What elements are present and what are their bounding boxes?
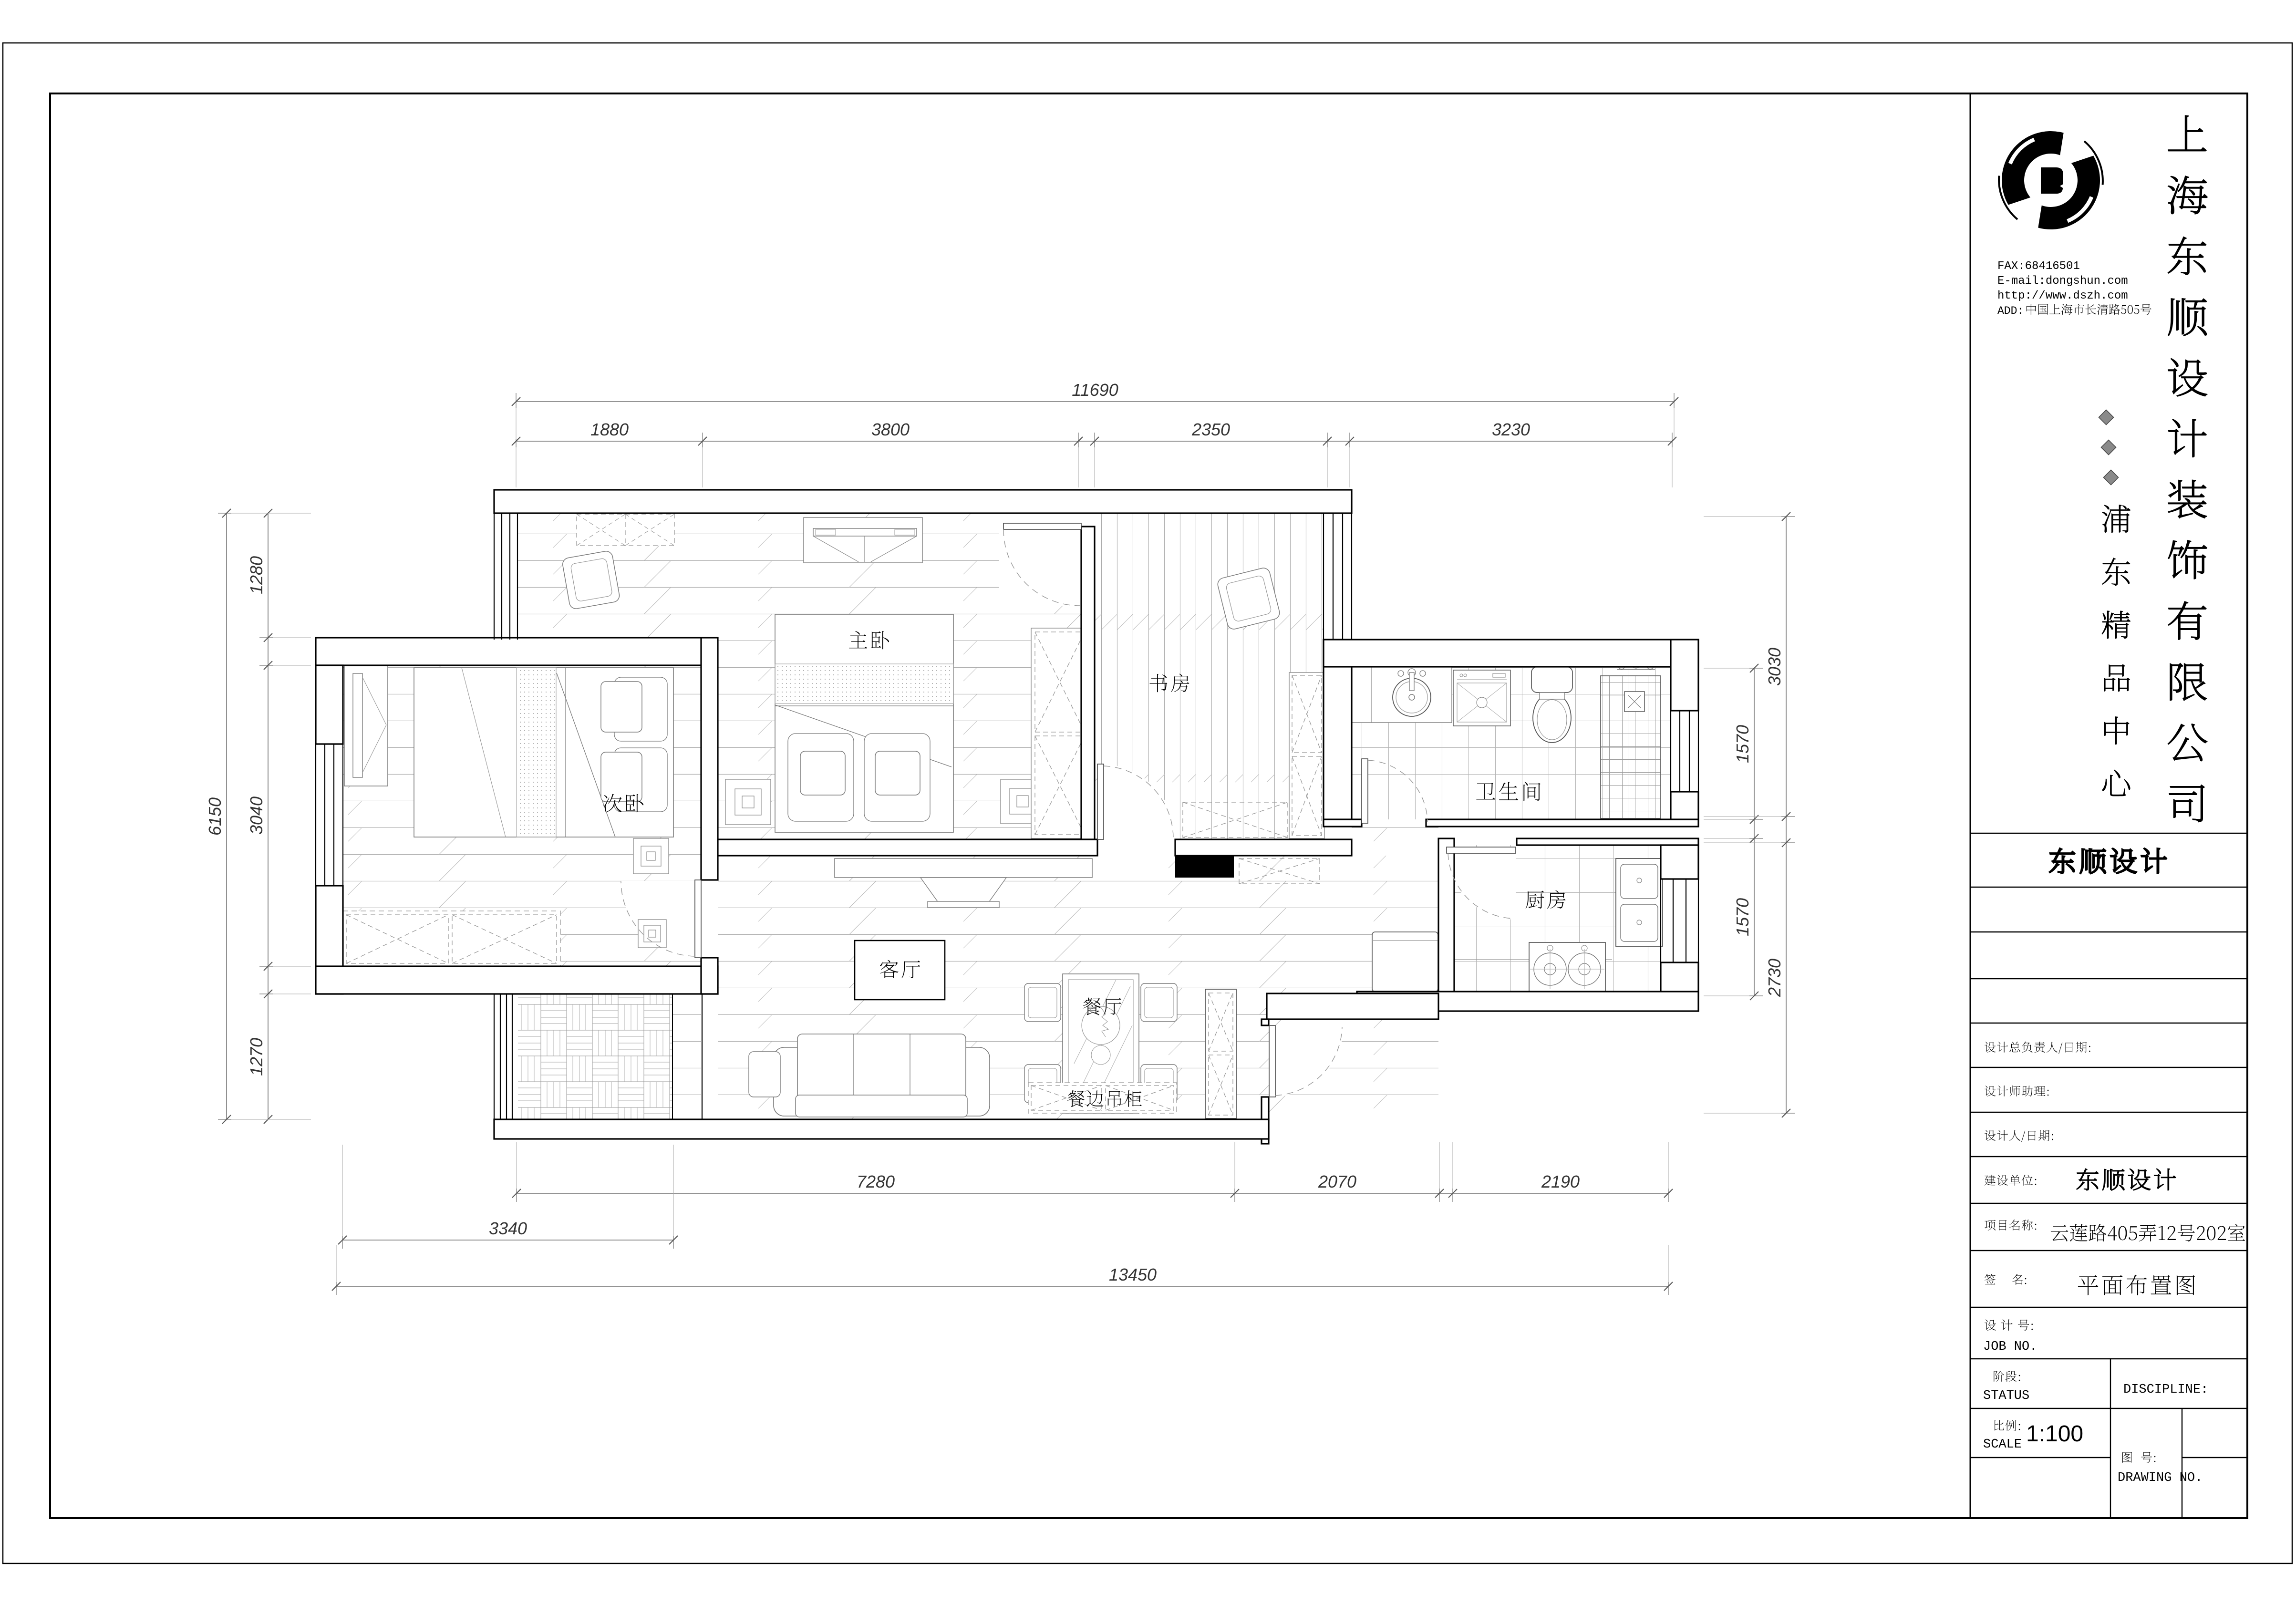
- svg-text:E-mail:dongshun.com: E-mail:dongshun.com: [1997, 275, 2128, 288]
- svg-text:6150: 6150: [205, 797, 225, 836]
- svg-text:DRAWING NO.: DRAWING NO.: [2118, 1471, 2203, 1485]
- svg-text:2350: 2350: [1191, 420, 1230, 439]
- svg-text:JOB NO.: JOB NO.: [1983, 1340, 2037, 1354]
- svg-text:2070: 2070: [1318, 1172, 1356, 1191]
- svg-text:1280: 1280: [247, 556, 266, 594]
- svg-text:1:100: 1:100: [2026, 1421, 2083, 1447]
- svg-text:2730: 2730: [1765, 959, 1784, 997]
- svg-text:2190: 2190: [1541, 1172, 1580, 1191]
- svg-text:FAX:68416501: FAX:68416501: [1997, 260, 2080, 273]
- svg-text:1570: 1570: [1733, 898, 1752, 936]
- svg-text:3230: 3230: [1492, 420, 1530, 439]
- svg-text:3340: 3340: [489, 1219, 527, 1238]
- svg-text:STATUS: STATUS: [1983, 1389, 2029, 1403]
- svg-text:3030: 3030: [1765, 648, 1784, 686]
- svg-text:http://www.dszh.com: http://www.dszh.com: [1997, 290, 2128, 302]
- svg-text:ADD:: ADD:: [1997, 305, 2024, 317]
- svg-text:1570: 1570: [1733, 725, 1752, 763]
- svg-text:13450: 13450: [1109, 1265, 1157, 1284]
- svg-text:DISCIPLINE:: DISCIPLINE:: [2123, 1383, 2208, 1397]
- svg-text:11690: 11690: [1072, 380, 1118, 400]
- svg-text:1270: 1270: [247, 1038, 266, 1076]
- svg-text:3800: 3800: [871, 420, 910, 439]
- svg-text:3040: 3040: [247, 796, 266, 835]
- svg-text:7280: 7280: [857, 1172, 895, 1191]
- svg-text:1880: 1880: [590, 420, 629, 439]
- svg-text:SCALE: SCALE: [1983, 1438, 2022, 1452]
